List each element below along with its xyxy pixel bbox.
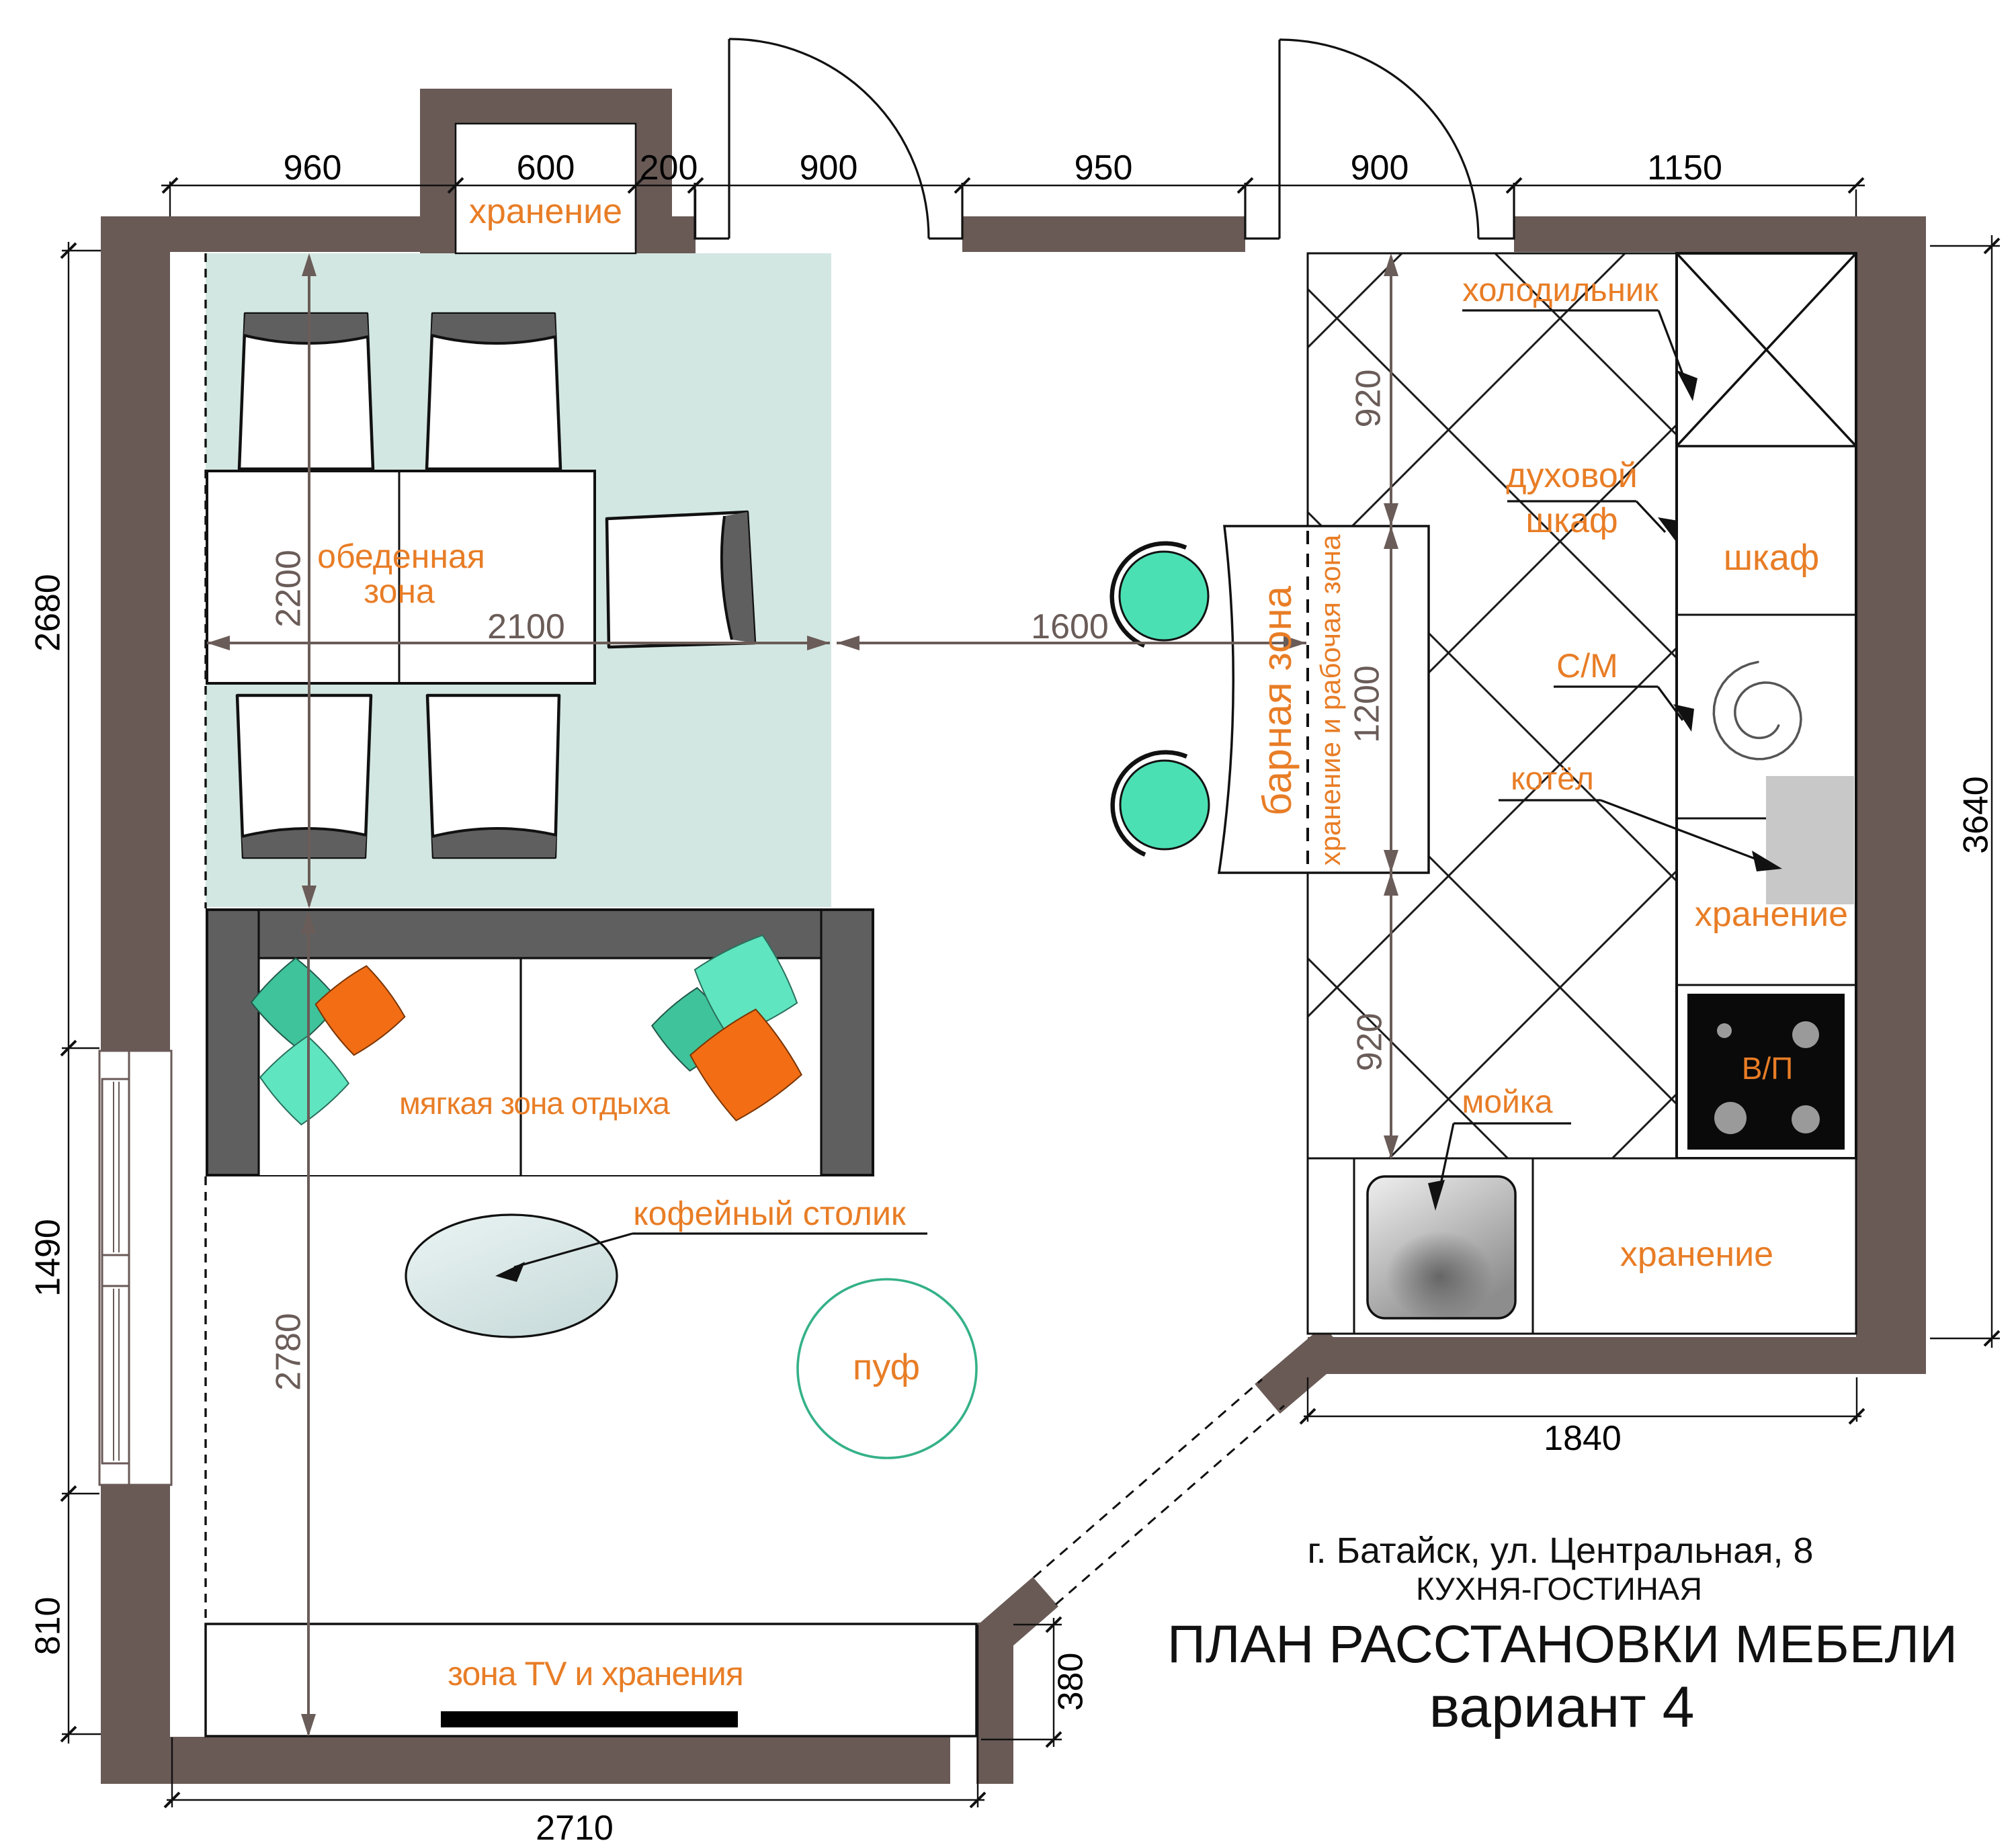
- svg-text:2200: 2200: [269, 550, 308, 628]
- svg-text:900: 900: [1351, 148, 1409, 187]
- svg-text:1490: 1490: [29, 1219, 68, 1297]
- svg-text:хранение: хранение: [1695, 895, 1848, 934]
- svg-text:зона TV и хранения: зона TV и хранения: [448, 1655, 743, 1692]
- svg-text:960: 960: [284, 148, 342, 187]
- svg-text:920: 920: [1351, 1013, 1390, 1072]
- svg-text:2780: 2780: [269, 1313, 308, 1391]
- svg-text:г. Батайск, ул. Центральная, 8: г. Батайск, ул. Центральная, 8: [1307, 1531, 1813, 1571]
- svg-text:котёл: котёл: [1511, 761, 1594, 797]
- svg-text:2100: 2100: [487, 607, 565, 646]
- svg-text:1150: 1150: [1647, 148, 1722, 187]
- svg-text:С/М: С/М: [1556, 647, 1618, 685]
- svg-text:хранение: хранение: [469, 192, 622, 231]
- svg-text:шкаф: шкаф: [1724, 538, 1820, 578]
- svg-text:мойка: мойка: [1462, 1084, 1553, 1120]
- svg-text:2680: 2680: [29, 574, 68, 652]
- svg-text:зона: зона: [364, 572, 435, 610]
- svg-text:ПЛАН РАССТАНОВКИ МЕБЕЛИ: ПЛАН РАССТАНОВКИ МЕБЕЛИ: [1167, 1614, 1958, 1674]
- svg-text:холодильник: холодильник: [1462, 272, 1658, 308]
- svg-text:барная зона: барная зона: [1255, 585, 1300, 816]
- svg-text:200: 200: [640, 148, 698, 187]
- svg-text:шкаф: шкаф: [1525, 501, 1618, 540]
- svg-text:1600: 1600: [1031, 607, 1109, 646]
- svg-text:обеденная: обеденная: [317, 538, 485, 575]
- svg-text:1200: 1200: [1348, 665, 1387, 743]
- svg-text:900: 900: [800, 148, 858, 187]
- svg-text:3640: 3640: [1957, 776, 1996, 854]
- svg-text:кофейный столик: кофейный столик: [633, 1195, 907, 1232]
- svg-text:мягкая зона отдыха: мягкая зона отдыха: [399, 1086, 670, 1121]
- svg-text:хранение и рабочая зона: хранение и рабочая зона: [1314, 534, 1346, 865]
- svg-text:В/П: В/П: [1742, 1051, 1794, 1086]
- svg-text:2710: 2710: [536, 1809, 614, 1847]
- svg-text:вариант 4: вариант 4: [1429, 1675, 1695, 1739]
- svg-text:хранение: хранение: [1620, 1235, 1773, 1274]
- svg-text:духовой: духовой: [1506, 456, 1638, 495]
- svg-text:пуф: пуф: [853, 1347, 920, 1387]
- svg-text:380: 380: [1052, 1653, 1091, 1711]
- svg-text:810: 810: [29, 1597, 68, 1656]
- svg-text:600: 600: [517, 148, 575, 187]
- svg-text:920: 920: [1349, 370, 1388, 428]
- svg-text:1840: 1840: [1544, 1419, 1622, 1458]
- svg-text:950: 950: [1075, 148, 1133, 187]
- svg-text:КУХНЯ-ГОСТИНАЯ: КУХНЯ-ГОСТИНАЯ: [1416, 1571, 1702, 1606]
